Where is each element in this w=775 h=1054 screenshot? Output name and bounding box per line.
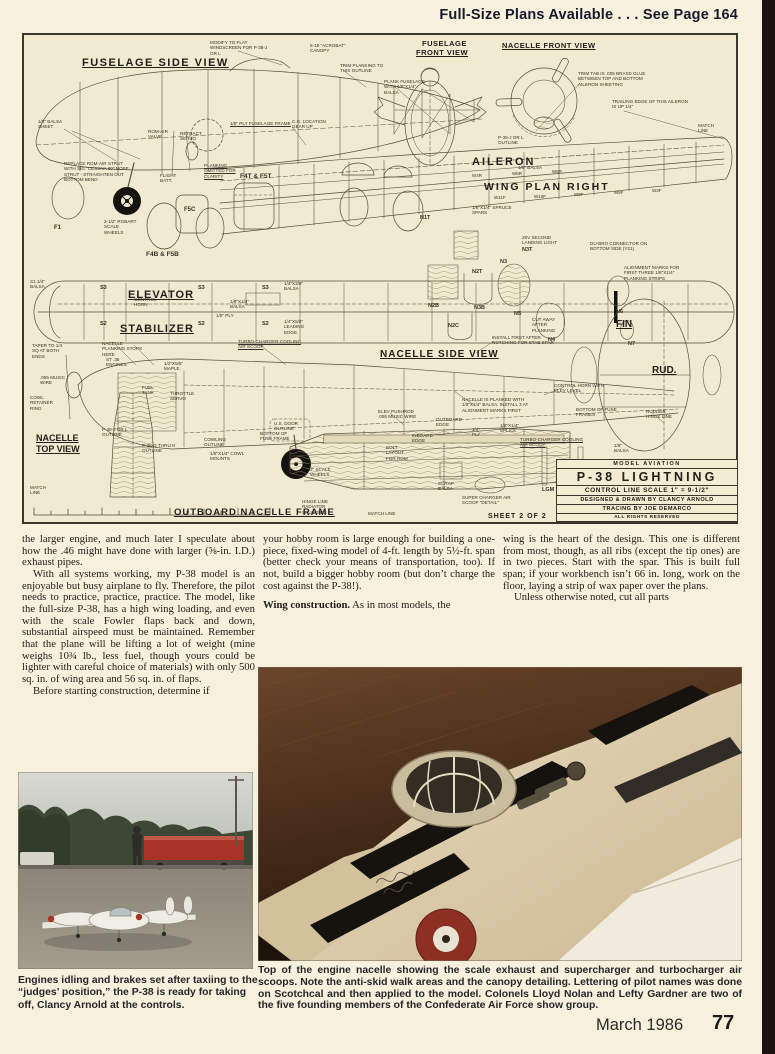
plan-annotation: 1/4"x3/8" BALSA [284,281,314,292]
plan-annotation: U.S. DOOR OUTLINE [274,421,304,432]
plan-annotation: 1/2"x5/8" MAPLE [164,361,194,372]
plan-annotation: 1/8"x1/4" SPLICE [500,423,528,434]
canopy-detail [392,751,516,827]
plan-annotation: 1/4" PLY [472,427,488,438]
left-photo-caption: Engines idling and brakes set after taxi… [18,975,258,1012]
paragraph: With all systems working, my P-38 model … [22,569,255,686]
plan-annotation: P-38-J OR L OUTLINE [498,135,538,146]
plan-annotation: REPLACE ROM-AIR STRUT WITH SIG "CESSNA 6… [64,161,130,182]
plan-annotation: CONTROL HORN [134,297,160,308]
plan-annotation: COWLING OUTLINE [204,437,234,448]
plan-annotation: ELEV PUSHROD .055 MUSIC WIRE [378,409,422,420]
plan-annotation: SUPER CHARGER AIR SCOOP "DETAIL" [462,495,512,506]
plan-annotation: F5C [184,207,236,214]
plan-annotation: 1/8"x1/4" BALSA [230,299,258,310]
plan-annotation: THROTTLE SERVO [170,391,198,402]
light-pole [235,776,237,846]
plan-sheet-label: SHEET 2 OF 2 [488,513,547,520]
plan-annotation: TAPER TO 1/4 SQ AT BOTH ENDS [32,343,70,359]
photo-model-taxiing [18,772,253,969]
plan-annotation: 1/4"x5/8" LEADING EDGE [284,319,314,335]
plan-annotation: N3T [522,247,574,253]
paragraph: Unless otherwise noted, cut all parts [503,592,740,604]
plan-annotation: MATCH LINE [698,123,724,134]
plan-annotation: 5-16 "ACROBAT" CANOPY [310,43,354,54]
plan-annotation: W3F [652,188,704,193]
plan-annotation: ST .35 ENGINES [106,357,130,368]
plan-annotation: F4B & F5B [146,251,198,258]
plan-annotation: TRIM PLANKING TO THIS OUTLINE [340,63,388,74]
plan-annotation: FUEL TANK [142,385,166,396]
plan-annotation: N2B [428,303,480,309]
plan-annotation: N2T [472,269,524,275]
plan-annotation: S2 [198,321,250,327]
plan-notes: 1/8" BALSA SHEETMODIFY TO FLAT WINDSCREE… [24,35,736,522]
plan-annotation: S3 [100,285,152,291]
white-vehicle [20,852,54,865]
plan-annotation: N3 [500,259,552,265]
plan-annotation: N2C [448,323,500,329]
plan-annotation: MATCH LINE [368,511,398,516]
plan-annotation: ALIGNMENT MARKS FOR FIRST THREE 1/8"x1/4… [624,265,682,281]
plan-annotation: F1 [54,225,106,232]
paragraph: wing is the heart of the design. This on… [503,534,740,592]
plan-annotation: N5 [514,311,566,317]
plan-annotation: TRAILING EDGE OF THIS AILERON IS UP 1/4" [612,99,690,110]
plan-annotation: ROM-AIR VALVE [148,129,174,140]
plan-annotation: 1/8" BALSA [614,443,638,454]
page-number: 77 [712,1012,734,1035]
paragraph: your hobby room is large enough for buil… [263,534,495,592]
plan-annotation: PLANK FUSELAGE WITH 1/8"x1/4" BALSA [384,79,428,95]
p38-plans-drawing: FUSELAGE SIDE VIEWFUSELAGEFRONT VIEWNACE… [22,33,738,524]
plan-annotation: F4T & F5T [240,173,292,180]
plan-annotation: 1/8" BALSA [518,165,548,170]
article-column-3: wing is the heart of the design. This on… [503,534,740,604]
plan-annotation: 2-1/2" ROBART SCALE WHEELS [104,219,138,235]
plan-annotation: INSTALL FIRST AFTER NOTCHING FOR STAB SP… [492,335,554,346]
paragraph: Before starting construction, determine … [22,686,255,698]
plan-tracer: TRACING BY JOE DEMARCO [557,505,737,514]
plan-annotation: INBOARD EDGE [412,433,438,444]
plan-annotation: TRIM TAB IS .005 BRASS GLUE BETWEEN TOP … [578,71,656,87]
plan-annotation: BOTTOM OF FUSE FRAME [260,431,296,442]
plan-rights: ALL RIGHTS RESERVED [557,514,737,521]
magazine-page: Full-Size Plans Available . . . See Page… [0,0,775,1054]
plan-annotation: SCRAP BALSA [438,481,462,492]
plan-annotation: COWL RETAINER RING [30,395,60,411]
plan-annotation: S2 [100,321,152,327]
plan-annotation: S1 1/4" BALSA [30,279,52,290]
plan-annotation: RETRACT SERVO [180,131,206,142]
plan-annotation: 1/8" BALSA SHEET [38,119,72,130]
plan-annotation: BOLT LAYOUT FOR ROM [386,445,414,461]
plan-annotation: NACELLE IS PLANKED WITH 1/8"x1/4" BALSA.… [462,397,534,413]
plan-annotation: TURBO-CHARGER COOLING AIR SCOOP [238,339,304,350]
plan-scale: CONTROL LINE SCALE 1" = 9-1/2" [557,486,737,496]
plan-annotation: P-38-J OR L OUTLINE [102,427,138,438]
plan-annotation: CONTROL HORN WITH ELEV LEVEL [554,383,606,394]
wing-construction-paragraph: Wing construction. As in most models, th… [263,600,495,612]
article-column-1: the larger engine, and much later I spec… [22,534,255,697]
run-in-heading: Wing construction. [263,599,350,611]
plan-annotation: DU-BRO CONNECTOR ON BOTTOM SIDE (Y21) [590,241,652,252]
plan-annotation: BOTTOM OF FUSE FRAMES [576,407,620,418]
plan-title-block: MODEL AVIATION P-38 LIGHTNING CONTROL LI… [556,459,738,522]
plan-designer: DESIGNED & DRAWN BY CLANCY ARNOLD [557,496,737,505]
plan-annotation: W6R [552,169,604,174]
canopy [110,908,131,917]
plan-annotation: MODIFY TO FLAT WINDSCREEN FOR P-38-J OR … [210,40,272,56]
plan-annotation: P-38-G THRU H OUTLINE [142,443,182,454]
red-truck-trailer [144,836,244,870]
plan-model-name: P-38 LIGHTNING [557,469,737,486]
plans-availability-note: Full-Size Plans Available . . . See Page… [280,7,738,23]
plan-annotation: N1T [420,215,472,221]
right-photo-caption: Top of the engine nacelle showing the sc… [258,965,742,1012]
plan-annotation: N7 [628,341,680,347]
plan-annotation: C.G. LOCATION GEAR UP [292,119,326,130]
plan-annotation: .055 MUSIC WIRE [40,375,66,386]
plan-annotation: 1/8"x1/4" COWL MOUNTS [210,451,244,462]
plan-annotation: N4 [548,337,600,343]
plan-annotation: 1/8"x1/4" SPRUCE SPARS [472,205,512,216]
plan-annotation: MATCH LINE [30,485,52,496]
plan-annotation: 1/8" PLY [216,313,234,318]
plan-annotation: N6 [616,309,668,315]
plan-annotation: S3 [198,285,250,291]
page-edge-bar [762,0,775,1054]
plan-annotation: 25V SECOND LANDING LIGHT [522,235,566,246]
plan-annotation: HINGE LINE RADIATOR SHUTTERS [302,499,348,515]
paragraph: the larger engine, and much later I spec… [22,534,255,569]
plan-magazine-name: MODEL AVIATION [557,460,737,469]
plan-annotation: FLIGHT BATT. [160,173,182,184]
plan-annotation: OUTBOARD EDGE [436,417,466,428]
plan-annotation: NACELLE PLANKING STOPS HERE [102,341,142,357]
issue-date: March 1986 [596,1016,683,1035]
supercharger-scoop [567,762,585,780]
plan-annotation: CUT AWAY AFTER PLANKING [532,317,566,333]
plan-annotation: RUDDER HINGE LINE [646,409,680,420]
article-column-2: your hobby room is large enough for buil… [263,534,495,612]
paragraph-continuation: As in most models, the [350,599,450,611]
plan-annotation: 3" SCALE WHEELS [310,467,336,478]
plan-annotation: TURBO-CHARGER COOLING AIR SCOOP [520,437,590,448]
photo-nacelle-closeup [258,667,742,961]
